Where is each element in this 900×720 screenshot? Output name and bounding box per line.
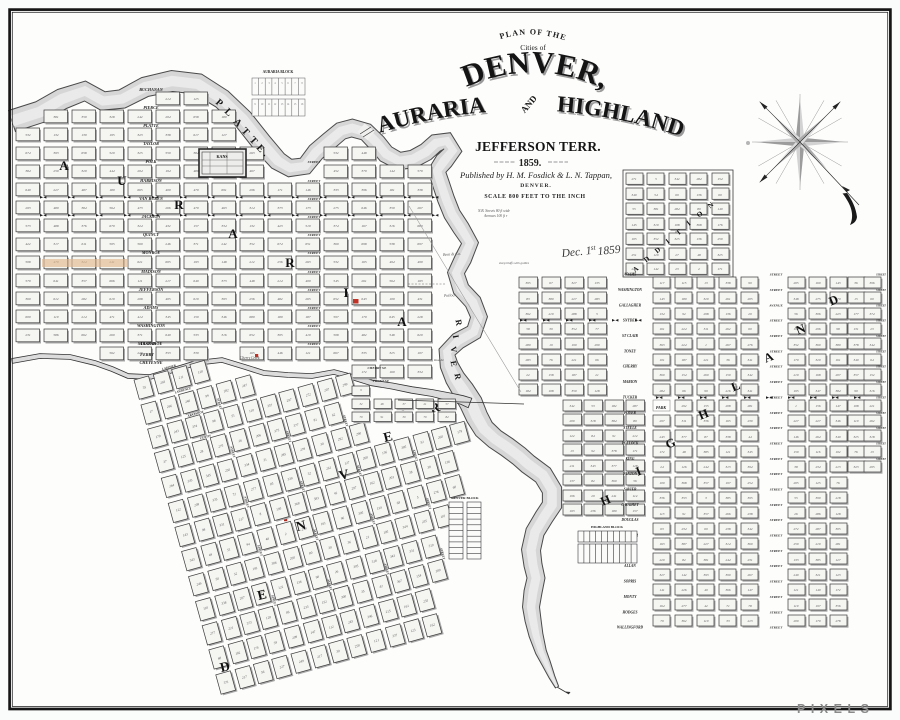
svg-text:142: 142 (653, 267, 658, 271)
svg-text:CAUGHEY: CAUGHEY (621, 503, 639, 507)
svg-text:209: 209 (569, 419, 574, 423)
svg-text:564: 564 (109, 206, 115, 210)
svg-text:334: 334 (221, 224, 227, 228)
svg-text:A: A (59, 158, 69, 173)
svg-text:649: 649 (193, 279, 199, 283)
svg-text:311: 311 (682, 419, 687, 423)
svg-text:377: 377 (681, 435, 686, 439)
svg-text:564: 564 (389, 279, 395, 283)
svg-text:172: 172 (659, 450, 664, 454)
svg-text:114: 114 (633, 494, 638, 498)
svg-text:148: 148 (221, 260, 227, 264)
svg-text:KANS: KANS (216, 154, 228, 159)
svg-text:13: 13 (704, 281, 708, 285)
svg-text:357: 357 (81, 279, 87, 283)
svg-text:69: 69 (675, 193, 679, 197)
svg-text:275: 275 (333, 206, 339, 210)
svg-text:340: 340 (631, 193, 636, 197)
svg-text:280: 280 (525, 343, 530, 347)
svg-text:Road &c: Road &c (433, 359, 445, 362)
svg-text:100: 100 (659, 481, 664, 485)
svg-text:1859: 1859 (597, 244, 621, 258)
svg-text:22: 22 (526, 373, 530, 377)
svg-text:227: 227 (793, 419, 798, 423)
svg-text:369: 369 (815, 343, 820, 347)
svg-text:STREET: STREET (770, 534, 783, 538)
svg-text:323: 323 (853, 465, 858, 469)
svg-text:ADAMS: ADAMS (143, 305, 159, 310)
svg-text:325: 325 (717, 253, 722, 257)
svg-text:STREET: STREET (308, 233, 322, 237)
svg-text:STREET: STREET (308, 160, 322, 164)
svg-text:32: 32 (360, 402, 364, 406)
svg-text:203: 203 (25, 206, 31, 210)
svg-text:JEFFERSON TERR.: JEFFERSON TERR. (475, 139, 601, 154)
svg-text:467: 467 (249, 169, 255, 173)
svg-text:342: 342 (747, 527, 752, 531)
svg-text:STREET: STREET (308, 306, 322, 310)
svg-text:136: 136 (696, 193, 701, 197)
svg-text:216: 216 (725, 389, 730, 393)
svg-text:562: 562 (109, 351, 115, 355)
svg-text:338: 338 (725, 435, 730, 439)
svg-text:385: 385 (815, 558, 820, 562)
svg-text:STREET: STREET (770, 564, 783, 568)
svg-text:Cherry Creek: Cherry Creek (240, 356, 260, 360)
svg-text:368: 368 (681, 481, 686, 485)
svg-text:340: 340 (835, 435, 840, 439)
svg-text:STREET: STREET (770, 503, 783, 507)
svg-text:221: 221 (869, 404, 874, 408)
svg-text:264: 264 (815, 435, 820, 439)
svg-text:347: 347 (815, 389, 820, 393)
svg-text:20: 20 (591, 494, 595, 498)
svg-text:144: 144 (389, 169, 395, 173)
svg-text:196: 196 (569, 494, 574, 498)
svg-text:212: 212 (249, 260, 255, 264)
svg-text:284: 284 (674, 207, 679, 211)
svg-text:371: 371 (193, 242, 199, 246)
svg-text:82: 82 (682, 558, 686, 562)
svg-text:141: 141 (659, 588, 664, 592)
svg-text:228: 228 (417, 315, 423, 319)
svg-text:272: 272 (793, 527, 798, 531)
svg-text:317: 317 (53, 242, 59, 246)
svg-text:STREET: STREET (876, 274, 886, 277)
svg-text:CHERRY ST.: CHERRY ST. (368, 366, 387, 370)
svg-text:164: 164 (659, 604, 664, 608)
svg-text:321: 321 (815, 573, 820, 577)
svg-text:117: 117 (660, 281, 665, 285)
svg-text:342: 342 (569, 404, 574, 408)
svg-text:422: 422 (25, 242, 31, 246)
svg-text:470: 470 (193, 188, 199, 192)
svg-text:586: 586 (53, 333, 59, 337)
svg-text:37: 37 (403, 402, 407, 406)
svg-text:306: 306 (815, 312, 820, 316)
svg-text:579: 579 (25, 279, 31, 283)
svg-text:242: 242 (221, 242, 227, 246)
svg-text:194: 194 (165, 169, 171, 173)
svg-text:342: 342 (674, 177, 679, 181)
svg-text:341: 341 (747, 389, 752, 393)
svg-text:STREET: STREET (770, 273, 783, 277)
svg-text:298: 298 (703, 312, 708, 316)
svg-text:217: 217 (165, 279, 171, 283)
svg-text:119: 119 (794, 604, 799, 608)
svg-text:STREET: STREET (770, 472, 783, 476)
svg-text:PLATTE: PLATTE (143, 123, 159, 128)
svg-text:AVENUE: AVENUE (768, 303, 783, 307)
svg-text:79: 79 (424, 415, 428, 419)
svg-text:316: 316 (221, 333, 227, 337)
svg-text:330: 330 (193, 351, 199, 355)
svg-text:432: 432 (165, 224, 171, 228)
svg-text:256: 256 (277, 260, 283, 264)
svg-text:227: 227 (703, 542, 708, 546)
svg-text:209: 209 (793, 619, 798, 623)
svg-text:448: 448 (249, 279, 255, 283)
svg-text:569: 569 (137, 242, 143, 246)
svg-text:167: 167 (361, 224, 367, 228)
svg-text:182: 182 (611, 404, 616, 408)
svg-text:STREET: STREET (308, 197, 322, 201)
svg-text:463: 463 (221, 206, 227, 210)
svg-text:381: 381 (653, 207, 658, 211)
svg-text:212: 212 (632, 434, 637, 438)
svg-text:666: 666 (109, 279, 115, 283)
svg-text:91: 91 (682, 512, 686, 516)
svg-text:105: 105 (631, 237, 636, 241)
svg-text:346: 346 (835, 419, 840, 423)
svg-text:21: 21 (424, 402, 428, 406)
svg-text:284: 284 (696, 177, 701, 181)
svg-text:160: 160 (389, 370, 395, 374)
svg-text:548: 548 (389, 333, 395, 337)
svg-text:311: 311 (704, 327, 709, 331)
svg-text:POYER: POYER (624, 411, 636, 415)
svg-text:303: 303 (221, 297, 227, 301)
svg-text:338: 338 (417, 188, 423, 192)
svg-text:POLLOCK: POLLOCK (622, 442, 639, 446)
svg-text:80: 80 (697, 207, 701, 211)
svg-text:159: 159 (793, 450, 798, 454)
svg-text:177: 177 (853, 312, 858, 316)
svg-text:108: 108 (548, 389, 553, 393)
svg-text:STREET: STREET (770, 426, 783, 430)
svg-text:187: 187 (571, 373, 576, 377)
svg-text:STREET: STREET (308, 324, 322, 328)
svg-text:691: 691 (221, 188, 227, 192)
svg-text:STREET: STREET (770, 457, 783, 461)
svg-text:640: 640 (165, 333, 171, 337)
svg-text:219: 219 (815, 542, 820, 546)
svg-text:R: R (285, 255, 295, 270)
svg-text:165: 165 (361, 260, 367, 264)
svg-text:325: 325 (389, 351, 395, 355)
svg-text:278: 278 (835, 619, 840, 623)
svg-text:384: 384 (611, 419, 616, 423)
svg-text:147: 147 (747, 588, 752, 592)
svg-text:350: 350 (389, 206, 395, 210)
svg-text:173: 173 (305, 206, 311, 210)
svg-text:90: 90 (854, 389, 858, 393)
svg-text:15: 15 (854, 297, 858, 301)
svg-text:STREET: STREET (876, 320, 886, 323)
svg-text:282: 282 (81, 297, 87, 301)
svg-text:MONROE: MONROE (141, 250, 161, 255)
svg-text:600: 600 (25, 315, 31, 319)
svg-text:619: 619 (109, 297, 115, 301)
svg-text:395: 395 (747, 496, 752, 500)
svg-text:125: 125 (815, 481, 820, 485)
svg-text:STREET: STREET (876, 289, 886, 292)
svg-text:STREET: STREET (770, 518, 783, 522)
svg-text:643: 643 (361, 297, 367, 301)
svg-text:STREET: STREET (770, 610, 783, 614)
svg-text:steep bluffs with gullies: steep bluffs with gullies (499, 261, 530, 265)
svg-text:135: 135 (594, 281, 599, 285)
svg-text:325: 325 (674, 237, 679, 241)
svg-text:66: 66 (595, 358, 599, 362)
svg-text:TONEY: TONEY (624, 349, 637, 353)
svg-text:145: 145 (631, 223, 636, 227)
svg-text:338: 338 (725, 281, 730, 285)
svg-text:267: 267 (747, 573, 752, 577)
svg-text:13: 13 (870, 450, 874, 454)
svg-text:STREET: STREET (770, 288, 783, 292)
svg-text:48: 48 (381, 402, 385, 406)
svg-text:605: 605 (165, 260, 171, 264)
svg-text:266: 266 (725, 512, 730, 516)
svg-text:611: 611 (82, 242, 87, 246)
svg-text:376: 376 (81, 224, 87, 228)
svg-text:187: 187 (681, 358, 686, 362)
svg-text:60: 60 (718, 193, 722, 197)
svg-text:76: 76 (549, 358, 553, 362)
svg-text:325: 325 (853, 435, 858, 439)
svg-text:HARRISON: HARRISON (139, 178, 163, 183)
svg-text:488: 488 (53, 224, 59, 228)
svg-text:377: 377 (611, 464, 616, 468)
svg-text:STREET: STREET (770, 626, 783, 630)
svg-text:140: 140 (815, 588, 820, 592)
svg-text:171: 171 (277, 188, 283, 192)
svg-text:352: 352 (249, 242, 255, 246)
svg-text:36: 36 (854, 281, 858, 285)
svg-text:265: 265 (305, 297, 311, 301)
svg-text:327: 327 (571, 281, 576, 285)
svg-text:224: 224 (681, 327, 686, 331)
svg-text:532: 532 (25, 133, 31, 137)
svg-text:204: 204 (137, 169, 143, 173)
svg-text:380: 380 (548, 297, 553, 301)
svg-text:161: 161 (835, 358, 840, 362)
svg-text:384: 384 (25, 169, 31, 173)
svg-text:SCALE 800 FEET TO THE INCH: SCALE 800 FEET TO THE INCH (484, 194, 585, 200)
svg-text:357: 357 (703, 512, 708, 516)
svg-text:244: 244 (725, 558, 730, 562)
svg-text:110: 110 (854, 419, 859, 423)
svg-text:2: 2 (698, 267, 700, 271)
svg-text:STREET: STREET (876, 412, 886, 415)
svg-text:399: 399 (725, 573, 730, 577)
svg-text:19: 19 (549, 343, 553, 347)
svg-text:77: 77 (595, 327, 599, 331)
svg-text:127: 127 (221, 133, 227, 137)
svg-text:82: 82 (591, 479, 595, 483)
svg-text:385: 385 (725, 496, 730, 500)
svg-text:538: 538 (389, 242, 395, 246)
svg-text:STREET: STREET (308, 179, 322, 183)
svg-text:56: 56 (794, 312, 798, 316)
svg-text:STREET: STREET (308, 215, 322, 219)
svg-text:70: 70 (360, 415, 364, 419)
svg-text:99: 99 (704, 389, 708, 393)
svg-text:343: 343 (590, 464, 595, 468)
svg-text:SAVIER: SAVIER (624, 488, 637, 492)
svg-text:1: 1 (705, 343, 707, 347)
svg-text:21: 21 (595, 373, 599, 377)
svg-text:76: 76 (854, 450, 858, 454)
svg-text:369: 369 (747, 542, 752, 546)
svg-text:168: 168 (815, 373, 820, 377)
svg-text:205: 205 (793, 481, 798, 485)
svg-text:395: 395 (525, 281, 530, 285)
svg-text:91: 91 (612, 434, 616, 438)
svg-text:394: 394 (747, 465, 752, 469)
svg-text:381: 381 (53, 115, 59, 119)
svg-text:CHEYENNE: CHEYENNE (139, 360, 162, 365)
svg-text:320: 320 (81, 169, 87, 173)
svg-text:A: A (397, 314, 407, 329)
svg-text:STREET: STREET (876, 443, 886, 446)
svg-text:66: 66 (682, 389, 686, 393)
svg-text:MADISON: MADISON (140, 269, 162, 274)
svg-text:368: 368 (696, 223, 701, 227)
svg-text:83: 83 (526, 297, 530, 301)
svg-text:214: 214 (277, 279, 283, 283)
svg-text:13: 13 (570, 449, 574, 453)
svg-text:54: 54 (654, 193, 658, 197)
svg-text:80: 80 (633, 419, 637, 423)
svg-text:256: 256 (249, 297, 255, 301)
svg-text:396: 396 (869, 281, 874, 285)
svg-text:208: 208 (725, 404, 730, 408)
svg-text:423: 423 (277, 224, 283, 228)
svg-text:227: 227 (53, 188, 59, 192)
svg-text:214: 214 (165, 97, 171, 101)
svg-text:241: 241 (611, 494, 616, 498)
svg-text:299: 299 (594, 343, 599, 347)
svg-text:262: 262 (869, 419, 874, 423)
svg-text:267: 267 (417, 206, 423, 210)
svg-text:60: 60 (870, 297, 874, 301)
svg-text:573: 573 (25, 224, 31, 228)
svg-text:318: 318 (869, 435, 874, 439)
svg-text:295: 295 (869, 465, 874, 469)
svg-text:261: 261 (361, 279, 367, 283)
svg-text:473: 473 (137, 206, 143, 210)
svg-text:STREET: STREET (770, 334, 783, 338)
svg-text:374: 374 (333, 224, 339, 228)
svg-text:336: 336 (659, 496, 664, 500)
svg-text:159: 159 (725, 373, 730, 377)
svg-text:STREET: STREET (770, 549, 783, 553)
svg-text:276: 276 (747, 343, 752, 347)
svg-text:338: 338 (165, 133, 171, 137)
svg-text:229: 229 (659, 558, 664, 562)
svg-text:40: 40 (704, 588, 708, 592)
svg-text:87: 87 (704, 435, 708, 439)
svg-text:345: 345 (747, 450, 752, 454)
svg-text:38: 38 (794, 465, 798, 469)
svg-text:226: 226 (681, 588, 686, 592)
svg-text:100: 100 (389, 297, 395, 301)
svg-text:652: 652 (333, 297, 339, 301)
svg-text:318: 318 (590, 419, 595, 423)
svg-text:234: 234 (815, 465, 820, 469)
svg-text:658: 658 (81, 151, 87, 155)
svg-text:207: 207 (835, 373, 840, 377)
svg-text:PIERCE: PIERCE (143, 105, 159, 110)
svg-text:3: 3 (705, 496, 707, 500)
svg-text:190: 190 (571, 343, 576, 347)
svg-text:170: 170 (793, 358, 798, 362)
svg-text:316: 316 (869, 389, 874, 393)
svg-text:SOPRIS: SOPRIS (624, 580, 637, 584)
svg-text:360: 360 (611, 479, 616, 483)
svg-text:373: 373 (221, 279, 227, 283)
svg-text:63: 63 (660, 527, 664, 531)
svg-text:221: 221 (703, 358, 708, 362)
svg-text:267: 267 (725, 343, 730, 347)
svg-text:471: 471 (109, 315, 115, 319)
svg-text:381: 381 (703, 558, 708, 562)
svg-text:214: 214 (81, 315, 87, 319)
svg-text:218: 218 (835, 496, 840, 500)
svg-text:78: 78 (748, 604, 752, 608)
svg-text:329: 329 (703, 297, 708, 301)
svg-text:39: 39 (549, 327, 553, 331)
svg-text:67: 67 (549, 281, 553, 285)
svg-text:305: 305 (277, 333, 283, 337)
svg-text:84: 84 (591, 434, 595, 438)
svg-text:91: 91 (381, 415, 385, 419)
svg-text:275: 275 (815, 297, 820, 301)
svg-text:414: 414 (137, 315, 143, 319)
svg-text:158: 158 (548, 373, 553, 377)
svg-text:263: 263 (249, 151, 255, 155)
svg-text:297: 297 (659, 419, 664, 423)
svg-text:310: 310 (653, 223, 658, 227)
svg-text:667: 667 (333, 351, 339, 355)
svg-text:281: 281 (747, 404, 752, 408)
svg-text:111: 111 (138, 279, 143, 283)
svg-text:452: 452 (333, 169, 339, 173)
svg-text:354: 354 (571, 327, 576, 331)
svg-text:20: 20 (748, 312, 752, 316)
svg-text:446: 446 (277, 351, 283, 355)
svg-text:ALLAN: ALLAN (623, 564, 636, 568)
svg-text:396: 396 (361, 188, 367, 192)
svg-text:23: 23 (870, 327, 874, 331)
svg-text:MONTY: MONTY (623, 595, 638, 599)
svg-text:AURARIA BLOCK: AURARIA BLOCK (263, 70, 294, 74)
svg-text:357: 357 (703, 481, 708, 485)
svg-text:393: 393 (703, 573, 708, 577)
svg-text:482: 482 (277, 297, 283, 301)
